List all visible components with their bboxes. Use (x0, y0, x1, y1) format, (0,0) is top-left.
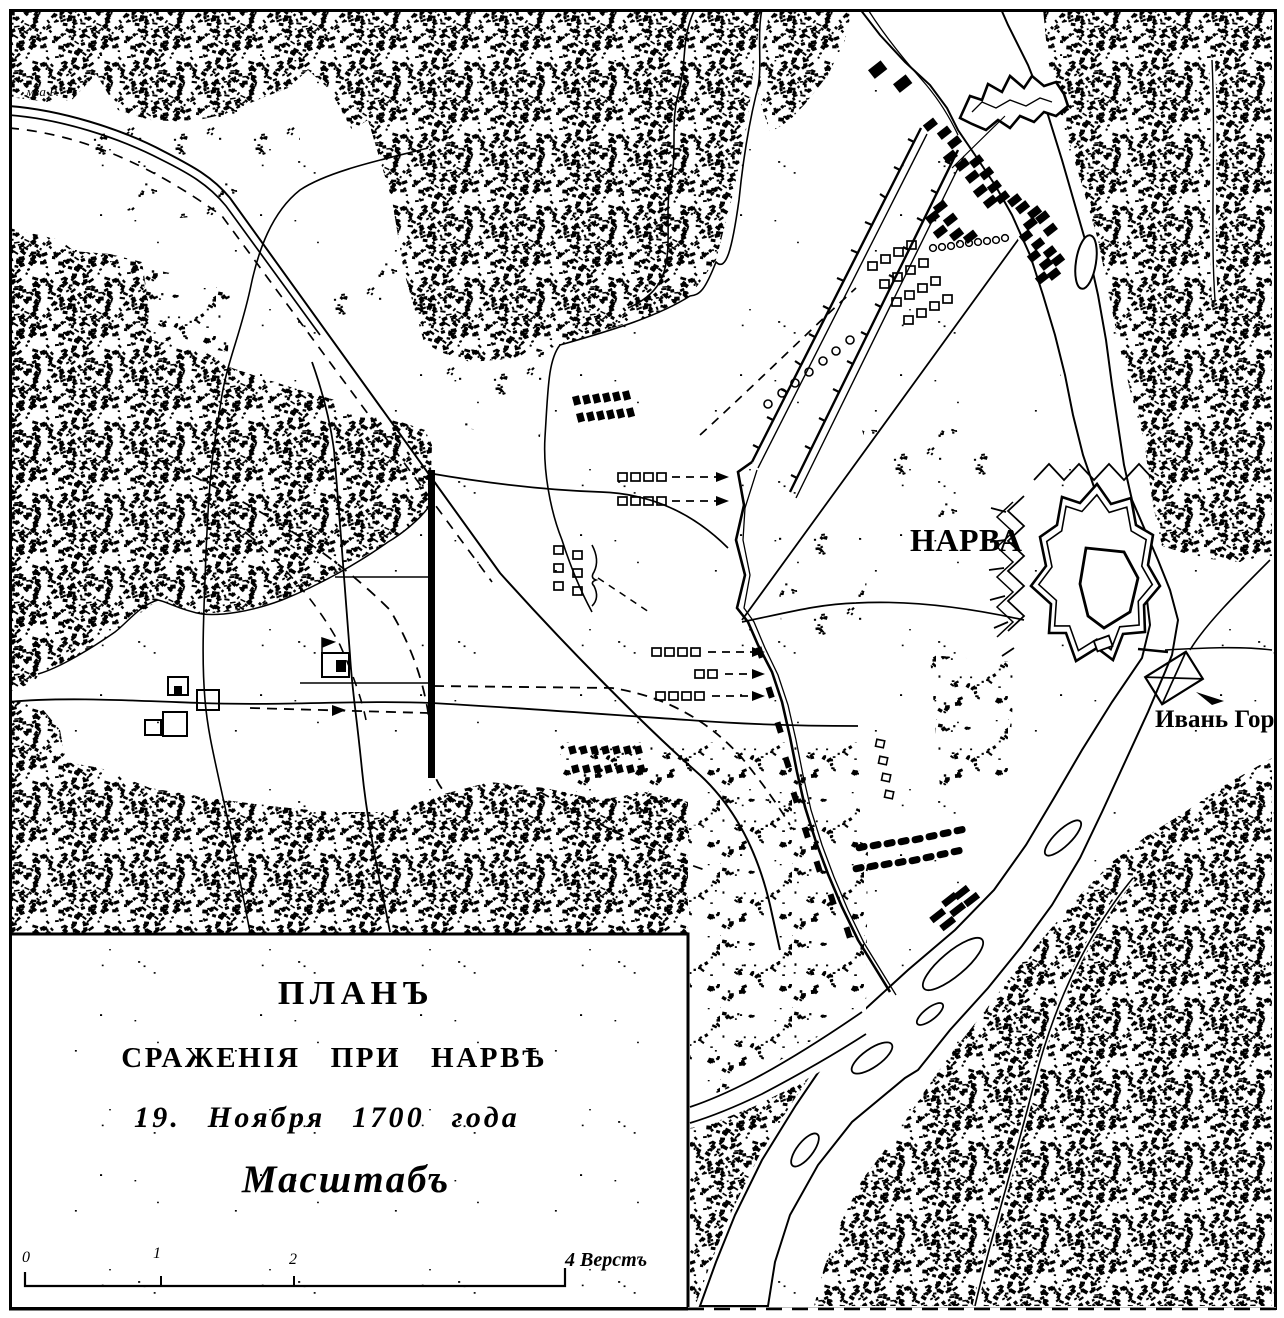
svg-text:4 Верстъ: 4 Верстъ (564, 1249, 647, 1271)
svg-text:НАРВА: НАРВА (910, 522, 1022, 558)
svg-text:Ивань Гор: Ивань Гор (1155, 706, 1274, 733)
svg-text:1: 1 (153, 1245, 161, 1262)
svg-text:Масштабъ: Масштабъ (241, 1158, 450, 1201)
svg-text:СРАЖЕНІЯ ПРИ НАРВѢ: СРАЖЕНІЯ ПРИ НАРВѢ (121, 1042, 547, 1074)
svg-text:0: 0 (22, 1249, 30, 1266)
svg-text:19. Ноября 1700 года: 19. Ноября 1700 года (134, 1101, 520, 1134)
svg-text:мза Р.: мза Р. (25, 84, 59, 99)
svg-text:2: 2 (289, 1251, 297, 1268)
svg-text:ПЛАНЪ: ПЛАНЪ (278, 975, 434, 1012)
